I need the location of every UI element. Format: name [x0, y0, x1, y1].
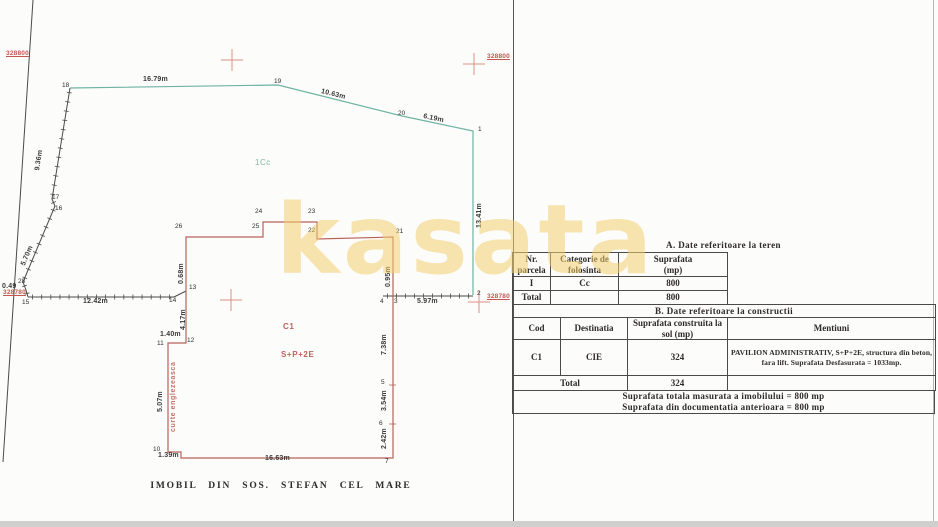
boundary-hatch-tick	[62, 120, 67, 121]
boundary-point-label: 28	[18, 278, 25, 285]
boundary-point-label: 13	[189, 284, 196, 291]
boundary-point-label: 2	[477, 290, 481, 297]
table-row: Total 800	[513, 291, 728, 305]
total-label-cell: Total	[513, 291, 551, 305]
dimension-label: 1.40m	[160, 331, 181, 338]
boundary-point-label: 12	[187, 337, 194, 344]
scan-bottom-edge	[0, 521, 938, 527]
boundary-point-label: 22	[308, 227, 315, 234]
table-a-header-nr: Nr.parcela	[513, 253, 551, 277]
grid-coordinate-label: 328780	[487, 293, 510, 300]
total-label-cell: Total	[513, 376, 628, 391]
boundary-point-label: 14	[169, 297, 176, 304]
table-row: I Cc 800	[513, 277, 728, 291]
grid-coordinate-label: 328800	[6, 50, 29, 57]
dimension-label: 0.68m	[178, 263, 185, 284]
grid-coordinate-label: 328780	[3, 289, 26, 296]
table-b-header-mentiuni: Mentiuni	[728, 318, 936, 340]
boundary-point-label: 5	[381, 379, 385, 386]
parcel-category-cell: Cc	[551, 277, 619, 291]
empty-cell	[728, 376, 936, 391]
dimension-label: 12.42m	[83, 298, 108, 305]
table-a-header-suprafata: Suprafata(mp)	[619, 253, 728, 277]
table-b-title: B. Date referitoare la constructii	[513, 305, 936, 318]
construction-notes-cell: PAVILION ADMINISTRATIV, S+P+2E, structur…	[728, 340, 936, 376]
boundary-point-label: 3	[394, 298, 398, 305]
page-right-edge	[933, 0, 934, 527]
boundary-hatch-tick	[59, 138, 64, 139]
boundary-hatch-tick	[53, 175, 58, 176]
dimension-label: 7.38m	[381, 334, 388, 355]
land-data-table: Nr.parcela Categorie defolosinta Suprafa…	[512, 252, 728, 305]
constructions-data-table: B. Date referitoare la constructii Cod D…	[512, 304, 936, 391]
construction-area-cell: 324	[628, 340, 728, 376]
dimension-label: 0.95m	[385, 266, 392, 287]
cadastral-plan-page: 1819201234567101112131415161728212223242…	[0, 0, 938, 527]
boundary-point-label: 18	[62, 82, 69, 89]
table-row: C1 CIE 324 PAVILION ADMINISTRATIV, S+P+2…	[513, 340, 936, 376]
table-b-header-destinatia: Destinatia	[561, 318, 628, 340]
boundary-hatch-tick	[65, 101, 70, 102]
boundary-point-label: 15	[22, 299, 29, 306]
summary-line-measured: Suprafata totala masurata a imobilului =…	[513, 391, 934, 402]
table-b-header-cod: Cod	[513, 318, 561, 340]
boundary-hatch-tick	[61, 129, 66, 130]
boundary-point-label: 21	[396, 228, 403, 235]
dimension-label: 16.63m	[265, 455, 290, 462]
boundary-hatch-tick	[64, 111, 69, 112]
table-b-header-suprafata: Suprafata construita lasol (mp)	[628, 318, 728, 340]
building-label: S+P+2E	[281, 350, 314, 359]
boundary-hatch-tick	[58, 148, 63, 149]
dimension-label: 5.97m	[417, 298, 438, 305]
boundary-point-label: 6	[379, 420, 383, 427]
boundary-point-label: 23	[308, 208, 315, 215]
boundary-point-label: 7	[385, 458, 389, 465]
table-a-title: A. Date referitoare la teren	[512, 240, 935, 250]
boundary-point-label: 26	[175, 223, 182, 230]
fence-boundary-line	[23, 88, 70, 297]
parcel-code-label: 1Cc	[255, 158, 271, 167]
boundary-hatch-tick	[55, 166, 60, 167]
boundary-hatch-tick	[67, 92, 72, 93]
building-outline	[168, 222, 393, 458]
dimension-label: 2.42m	[381, 428, 388, 449]
dimension-label: 4.17m	[180, 309, 187, 330]
boundary-point-label: 17	[52, 194, 59, 201]
site-plan-drawing	[0, 0, 938, 527]
boundary-point-label: 1	[478, 126, 482, 133]
total-area-cell: 324	[628, 376, 728, 391]
parcel-area-cell: 800	[619, 277, 728, 291]
courtyard-label: curte englezeasca	[170, 361, 177, 432]
dimension-label: 1.39m	[158, 452, 179, 459]
table-row: Total 324	[513, 376, 936, 391]
building-label: C1	[283, 322, 294, 331]
boundary-point-label: 20	[398, 110, 405, 117]
construction-destination-cell: CIE	[561, 340, 628, 376]
dimension-label: 3.54m	[381, 390, 388, 411]
dimension-label: 5.07m	[157, 391, 164, 412]
boundary-hatch-tick	[52, 185, 57, 186]
boundary-point-label: 24	[255, 208, 262, 215]
grid-coordinate-label: 328800	[487, 53, 510, 60]
total-area-cell: 800	[619, 291, 728, 305]
scan-edge-line	[3, 0, 33, 462]
parcel-number-cell: I	[513, 277, 551, 291]
boundary-point-label: 16	[55, 205, 62, 212]
parcel-boundary-line	[70, 85, 473, 295]
summary-line-previous: Suprafata din documentatia anterioara = …	[513, 402, 934, 413]
dimension-label: 16.79m	[143, 76, 168, 83]
table-a-header-categorie: Categorie defolosinta	[551, 253, 619, 277]
plan-caption: IMOBIL DIN SOS. STEFAN CEL MARE	[131, 481, 431, 491]
boundary-point-label: 11	[157, 340, 164, 347]
construction-code-cell: C1	[513, 340, 561, 376]
area-summary-box: Suprafata totala masurata a imobilului =…	[512, 390, 935, 414]
boundary-point-label: 4	[380, 298, 384, 305]
empty-cell	[551, 291, 619, 305]
dimension-label: 13.41m	[476, 203, 483, 228]
boundary-hatch-tick	[56, 157, 61, 158]
boundary-point-label: 19	[274, 78, 281, 85]
boundary-point-label: 25	[252, 223, 259, 230]
